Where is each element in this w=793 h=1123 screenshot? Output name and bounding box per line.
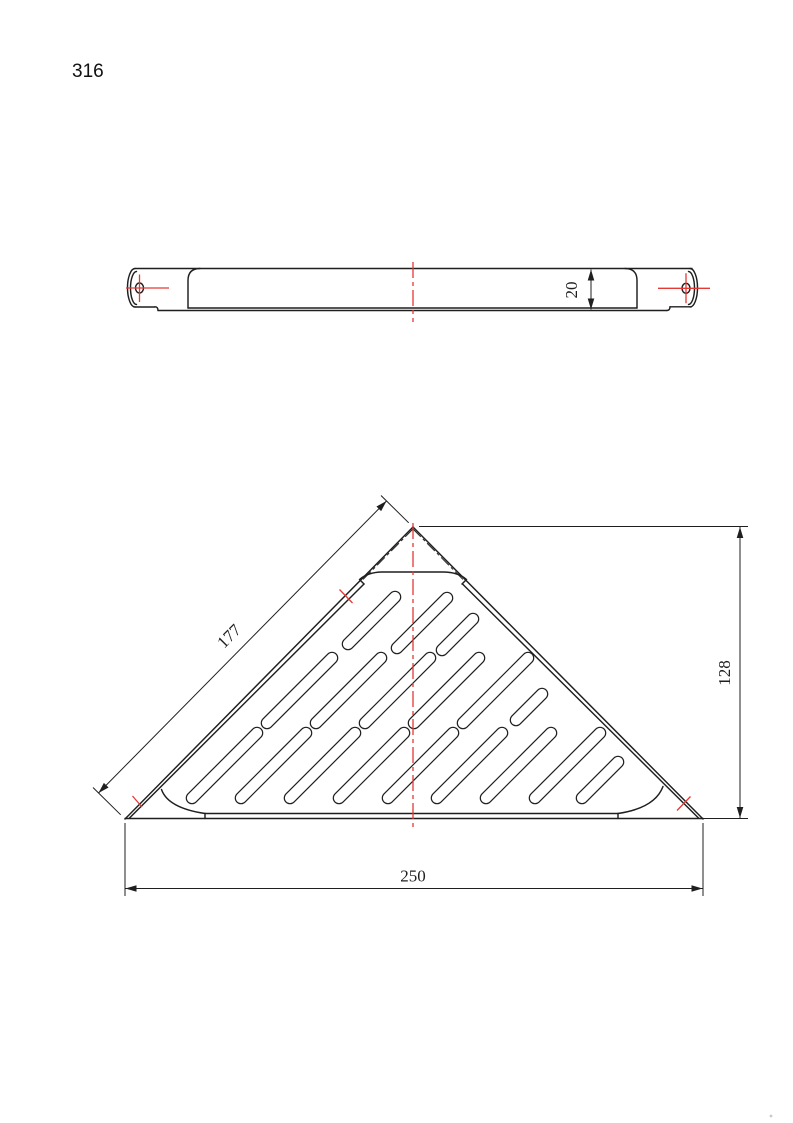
drain-slot [582, 762, 618, 798]
drain-slot [442, 619, 473, 650]
right-bracket [658, 269, 710, 308]
dim-label-width: 250 [400, 867, 426, 886]
dim-label-edge: 177 [213, 620, 245, 652]
side-profile-view: 20 [126, 262, 710, 322]
technical-drawing: 316 [0, 0, 793, 1123]
edge-tick-lower-left [133, 796, 143, 807]
dimension-20: 20 [562, 270, 591, 310]
drawing-page: 316 [0, 0, 793, 1123]
right-fold-line [413, 529, 464, 581]
drain-slot-group [192, 597, 618, 798]
plan-view: 177 128 250 [93, 496, 748, 897]
drain-slot [397, 598, 447, 648]
left-bracket [126, 269, 169, 308]
right-hole-crosshair [658, 273, 710, 303]
dimension-250: 250 [125, 823, 703, 896]
left-fold-line [362, 529, 413, 581]
dim-label-height: 128 [715, 660, 734, 686]
page-speck [770, 1115, 773, 1118]
left-hole-crosshair [126, 275, 169, 303]
page-number: 316 [72, 61, 104, 82]
dim-label-thickness: 20 [562, 282, 581, 299]
drain-slot [348, 597, 395, 644]
drain-slot [516, 694, 542, 720]
